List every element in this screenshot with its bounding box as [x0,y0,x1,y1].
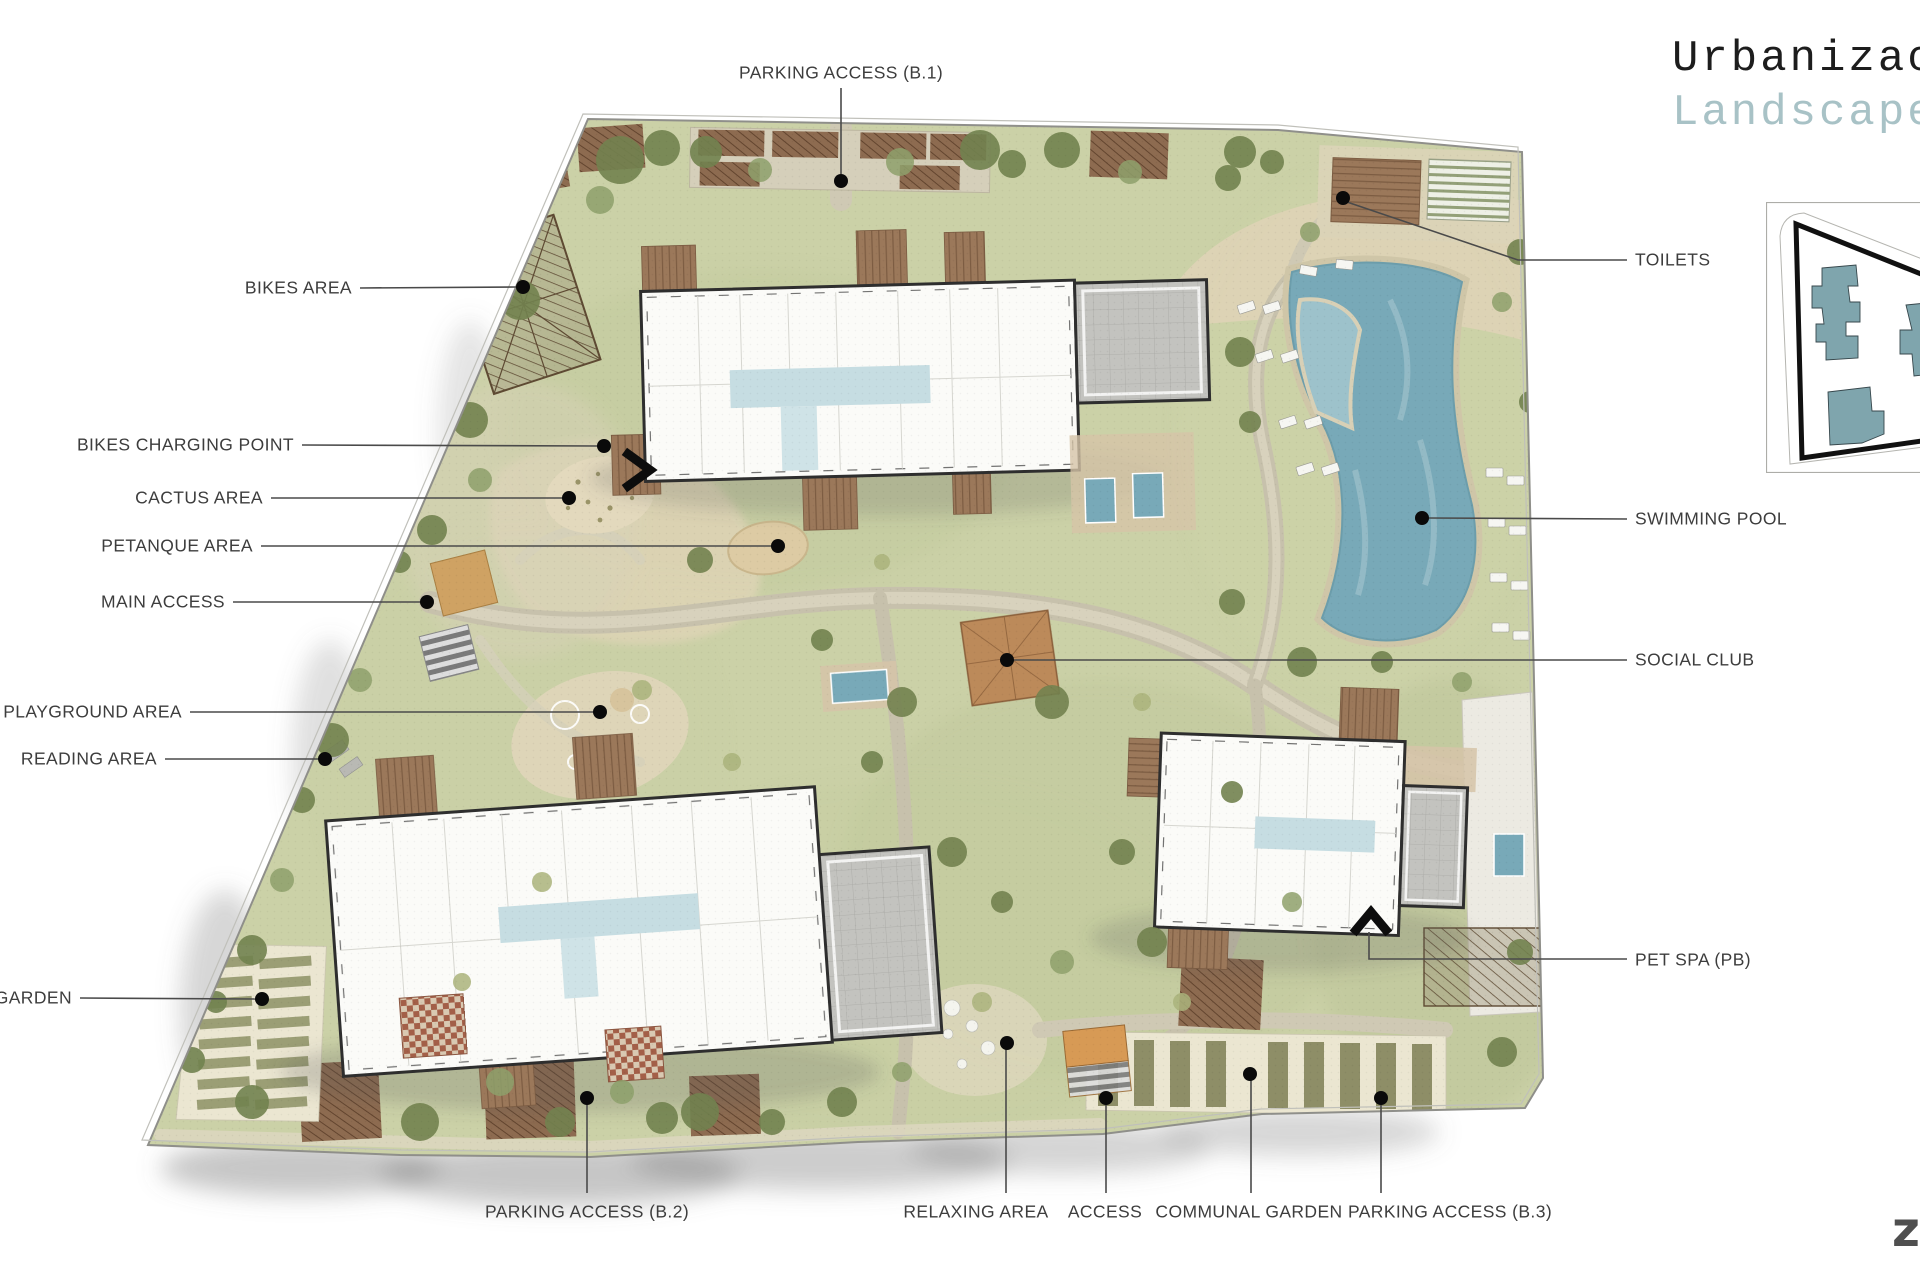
callout-label-reading-area: READING AREA [21,749,157,770]
callout-label-petanque-area: PETANQUE AREA [101,536,253,557]
callout-labels-layer: PARKING ACCESS (B.1)BIKES AREABIKES CHAR… [0,0,1920,1280]
callout-label-social-club: SOCIAL CLUB [1635,650,1754,671]
key-plan-inset [1766,202,1920,473]
callout-label-playground-area: PLAYGROUND AREA [3,702,182,723]
callout-label-bikes-area: BIKES AREA [245,278,352,299]
project-title: Urbanizac [1672,34,1920,84]
callout-label-pet-spa-pb: PET SPA (PB) [1635,950,1751,971]
callout-label-relaxing-area: RELAXING AREA [903,1202,1048,1223]
callout-label-toilets: TOILETS [1635,250,1710,271]
callout-label-parking-access-b1: PARKING ACCESS (B.1) [739,63,943,84]
callout-label-parking-access-b2: PARKING ACCESS (B.2) [485,1202,689,1223]
site-plan-canvas: PARKING ACCESS (B.1)BIKES AREABIKES CHAR… [0,0,1920,1280]
callout-label-bikes-charging-point: BIKES CHARGING POINT [77,435,294,456]
callout-label-access: ACCESS [1068,1202,1142,1223]
callout-label-communal-garden: COMMUNAL GARDEN [1155,1202,1342,1223]
project-subtitle: Landscape [1672,88,1920,138]
callout-label-parking-access-b3: PARKING ACCESS (B.3) [1348,1202,1552,1223]
logo-glyph: z [1892,1202,1920,1258]
title-block: Urbanizac Landscape [1672,34,1920,138]
callout-label-cactus-area: CACTUS AREA [135,488,263,509]
callout-label-communal-garden-left: L GARDEN [0,988,72,1009]
callout-label-main-access: MAIN ACCESS [101,592,225,613]
callout-label-swimming-pool: SWIMMING POOL [1635,509,1787,530]
